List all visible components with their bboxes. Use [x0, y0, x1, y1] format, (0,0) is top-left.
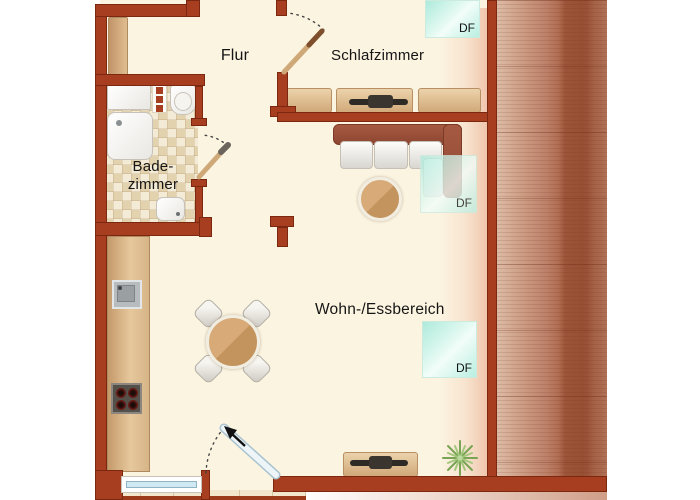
room-label-bathroom: Bade- zimmer — [118, 158, 188, 194]
room-label-living-dining: Wohn-/Essbereich — [315, 301, 445, 319]
entry-door-swing-arc — [206, 428, 224, 477]
bathroom-door-handle-icon — [221, 145, 228, 152]
door-plant-overlay — [0, 0, 700, 500]
room-label-bedroom: Schlafzimmer — [331, 47, 424, 64]
plant-icon — [443, 441, 477, 475]
bathroom-door-swing-arc — [202, 135, 228, 146]
bedroom-door-swing-arc — [287, 13, 324, 30]
bathroom-label-line2: zimmer — [128, 176, 178, 193]
room-label-hallway: Flur — [204, 47, 266, 65]
bedroom-door-handle-icon — [309, 31, 322, 45]
bathroom-label-line1: Bade- — [132, 158, 173, 175]
floor-plan: DF DF DF — [0, 0, 700, 500]
